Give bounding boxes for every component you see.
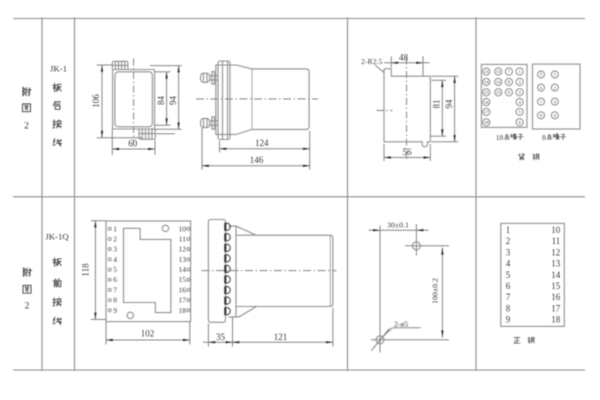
svg-text:13: 13 — [496, 69, 501, 74]
svg-text:JK-1: JK-1 — [50, 64, 67, 74]
svg-text:56: 56 — [403, 147, 413, 157]
svg-text:10: 10 — [179, 224, 187, 233]
svg-text:124: 124 — [255, 138, 269, 148]
svg-text:15: 15 — [179, 275, 187, 284]
svg-text:2: 2 — [24, 122, 29, 132]
svg-text:15: 15 — [551, 281, 561, 291]
svg-text:94: 94 — [168, 96, 178, 106]
svg-text:8: 8 — [506, 303, 511, 313]
svg-text:14: 14 — [551, 270, 561, 280]
svg-text:15: 15 — [484, 90, 489, 95]
svg-text:14: 14 — [179, 265, 187, 274]
svg-text:8: 8 — [542, 133, 546, 142]
svg-text:2: 2 — [113, 235, 117, 244]
svg-text:35: 35 — [216, 332, 226, 342]
svg-text:2: 2 — [506, 236, 511, 246]
svg-text:11: 11 — [552, 236, 561, 246]
svg-text:18: 18 — [484, 120, 489, 125]
svg-text:30±0.1: 30±0.1 — [387, 221, 409, 230]
svg-text:2-ø5: 2-ø5 — [394, 319, 408, 328]
svg-text:14: 14 — [484, 80, 489, 85]
svg-text:13: 13 — [484, 69, 489, 74]
svg-text:8: 8 — [113, 296, 117, 305]
svg-text:18: 18 — [551, 315, 561, 325]
svg-text:146: 146 — [250, 155, 264, 165]
svg-text:12: 12 — [551, 247, 560, 257]
svg-text:84: 84 — [156, 96, 166, 106]
svg-text:16: 16 — [484, 100, 489, 105]
svg-text:17: 17 — [551, 303, 561, 313]
svg-text:3: 3 — [506, 247, 511, 257]
svg-text:18: 18 — [496, 133, 504, 142]
svg-text:17: 17 — [484, 110, 489, 115]
svg-text:6: 6 — [506, 281, 511, 291]
svg-text:106: 106 — [91, 94, 101, 108]
svg-text:100±0.2: 100±0.2 — [430, 278, 439, 304]
svg-text:2: 2 — [25, 302, 30, 312]
svg-text:2-R2.5: 2-R2.5 — [361, 57, 383, 66]
svg-text:12: 12 — [179, 245, 187, 254]
svg-text:94: 94 — [444, 99, 454, 109]
svg-text:13: 13 — [179, 255, 187, 264]
svg-text:4: 4 — [506, 259, 511, 269]
svg-text:48: 48 — [399, 52, 409, 62]
svg-text:7: 7 — [113, 285, 117, 294]
svg-text:10: 10 — [551, 225, 561, 235]
svg-text:17: 17 — [179, 296, 187, 305]
svg-text:JK-1Q: JK-1Q — [45, 232, 69, 242]
svg-text:1: 1 — [113, 224, 117, 233]
svg-text:7: 7 — [506, 292, 511, 302]
svg-text:16: 16 — [179, 285, 187, 294]
svg-text:18: 18 — [179, 306, 187, 315]
svg-text:118: 118 — [81, 263, 91, 277]
svg-text:1: 1 — [506, 225, 511, 235]
svg-text:9: 9 — [113, 306, 117, 315]
svg-text:102: 102 — [141, 328, 155, 338]
svg-text:15: 15 — [496, 90, 501, 95]
svg-text:81: 81 — [432, 100, 442, 109]
svg-text:4: 4 — [113, 255, 117, 264]
svg-text:3: 3 — [113, 245, 117, 254]
svg-text:9: 9 — [506, 315, 511, 325]
svg-text:121: 121 — [274, 332, 288, 342]
svg-text:5: 5 — [506, 270, 511, 280]
svg-text:13: 13 — [551, 259, 561, 269]
svg-text:11: 11 — [179, 235, 186, 244]
svg-text:16: 16 — [551, 292, 561, 302]
svg-text:14: 14 — [496, 80, 501, 85]
svg-text:60: 60 — [128, 139, 138, 149]
svg-text:6: 6 — [113, 275, 117, 284]
svg-text:5: 5 — [113, 265, 117, 274]
